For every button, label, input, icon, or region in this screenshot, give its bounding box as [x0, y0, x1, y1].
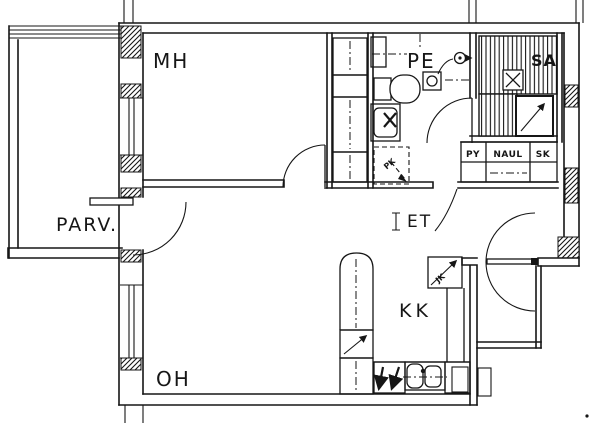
right-wall	[564, 23, 579, 266]
duct-box	[478, 368, 491, 396]
bathroom-door	[435, 189, 457, 231]
closet-label-naul: NAUL	[493, 150, 522, 160]
door-swing-arc	[427, 98, 472, 143]
door-swing-arc	[435, 189, 457, 231]
wall-hatch-block	[121, 155, 141, 172]
reserved-space-icon	[516, 96, 553, 136]
wall-hatch-block	[121, 188, 141, 197]
entry-east-wall	[536, 266, 541, 348]
stray-mark	[585, 414, 588, 417]
entry-south-wall	[477, 342, 541, 348]
balcony-left-wall	[9, 26, 18, 258]
wardrobe-box	[333, 75, 367, 97]
entry-door	[486, 213, 538, 311]
faucet-mark	[421, 369, 425, 373]
room-label-et: ET	[407, 212, 432, 232]
floor-drain-icon	[423, 72, 441, 90]
door-swing-arc	[133, 202, 186, 255]
closet-label-sk: SK	[536, 150, 551, 160]
floor-plan-page: PK PY NAUL	[0, 0, 600, 423]
closet-row-south-wall	[458, 182, 558, 188]
door-hinge-mark	[531, 258, 538, 265]
fridge-label: JK	[433, 271, 447, 285]
room-label-kk: KK	[399, 300, 432, 322]
room-label-pe: PE	[407, 49, 436, 73]
wall-hatch-block	[565, 168, 578, 203]
windows	[120, 98, 143, 358]
floor-plan-canvas: PK PY NAUL	[0, 0, 600, 423]
window-living-room	[120, 285, 143, 358]
room-label-oh: OH	[156, 367, 191, 391]
kitchenette: JK	[340, 253, 491, 396]
kitchen-counter-edges	[447, 288, 464, 362]
wall-hatch-block	[121, 358, 141, 370]
room-label-parv: PARV.	[56, 214, 118, 236]
door-swing-arc	[283, 145, 325, 187]
faucet-mark	[384, 113, 396, 127]
closet-label-py: PY	[466, 150, 480, 160]
top-wall	[119, 23, 579, 33]
balcony-bottom-wall	[8, 248, 122, 258]
left-wall	[119, 23, 143, 405]
bedroom-south-wall	[143, 180, 284, 187]
sink-icon	[371, 104, 400, 141]
wardrobe-cabinets	[333, 38, 367, 182]
fridge-reservation-icon: JK	[428, 257, 462, 288]
hall-north-wall	[325, 182, 433, 188]
room-label-mh: MH	[153, 49, 189, 73]
sauna-stove-icon	[503, 70, 523, 90]
bedroom-door	[283, 145, 325, 187]
bottom-wall	[119, 394, 477, 405]
entry-wall-stub	[538, 258, 579, 266]
wall-hatch-block	[121, 84, 141, 98]
sauna-east-wall	[557, 33, 562, 142]
closet-row: PY NAUL SK	[461, 142, 557, 182]
balcony-railing	[9, 26, 122, 40]
stove-icon	[374, 362, 405, 393]
window-bedroom	[120, 98, 143, 155]
sauna-bench-lower	[479, 94, 517, 136]
divider-cabinet-column	[340, 253, 373, 394]
washing-machine-reservation: PK	[374, 147, 409, 184]
shower-icon	[438, 53, 471, 75]
wall-hatch-block	[121, 250, 141, 262]
wall-hatch-block	[558, 237, 579, 258]
sauna-west-wall	[470, 33, 476, 98]
kitchen-end-cabinet	[445, 362, 470, 393]
wall-hatch-block	[121, 26, 141, 58]
wardrobe-column-walls	[327, 33, 373, 188]
pipe-riser-mark	[392, 213, 400, 230]
toilet-icon	[374, 75, 420, 103]
room-label-sa: SA	[531, 51, 557, 70]
wall-hatch-block	[565, 85, 578, 107]
sauna-door	[427, 98, 472, 143]
kitchen-sink-icon	[403, 362, 447, 390]
washer-label: PK	[382, 156, 398, 171]
